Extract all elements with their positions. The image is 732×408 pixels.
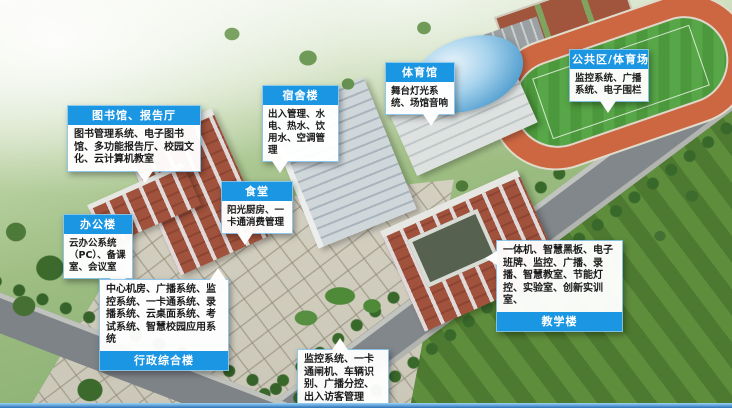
callout-gymnasium-title: 体育馆 xyxy=(386,63,454,82)
callout-public-area-title: 公共区/体育场 xyxy=(570,50,648,69)
callout-pointer xyxy=(423,114,439,126)
callout-gymnasium: 体育馆 舞台灯光系统、场馆音响 xyxy=(385,62,455,115)
callout-office-title: 办公楼 xyxy=(64,215,132,234)
callout-admin: 中心机房、广播系统、监控系统、一卡通系统、录播系统、云桌面系统、考试系统、智慧校… xyxy=(99,279,229,371)
smart-campus-diagram: 图书馆、报告厅 图书管理系统、电子图书馆、多功能报告厅、校园文化、云计算机教室 … xyxy=(0,0,732,408)
callout-canteen: 食堂 阳光厨房、一卡通消费管理 xyxy=(221,181,293,234)
callout-gate: 监控系统、一卡通闸机、车辆识别、广播分控、出入访客管理 校门口、门卫 xyxy=(297,349,389,408)
callout-dormitory-title: 宿舍楼 xyxy=(263,86,338,105)
callout-pointer xyxy=(210,268,226,280)
callout-pointer xyxy=(332,338,348,350)
callout-dormitory: 宿舍楼 出入管理、水电、热水、饮用水、空调管理 xyxy=(262,85,339,162)
callout-public-area: 公共区/体育场 监控系统、广播系统、电子围栏 xyxy=(569,49,649,102)
callout-teaching-body: 一体机、智慧黑板、电子班牌、监控、广播、录播、智慧教室、节能灯控、实验室、创新实… xyxy=(497,241,622,312)
callout-public-area-body: 监控系统、广播系统、电子围栏 xyxy=(570,69,648,101)
callout-pointer xyxy=(485,251,497,265)
callout-library-title: 图书馆、报告厅 xyxy=(68,106,200,125)
callout-pointer xyxy=(137,171,153,183)
slide-bottom-border xyxy=(0,403,732,408)
callout-teaching-title: 教学楼 xyxy=(497,312,622,331)
callout-gymnasium-body: 舞台灯光系统、场馆音响 xyxy=(386,82,454,114)
callout-gate-body: 监控系统、一卡通闸机、车辆识别、广播分控、出入访客管理 xyxy=(298,350,388,408)
callout-canteen-body: 阳光厨房、一卡通消费管理 xyxy=(222,201,292,233)
callout-teaching: 一体机、智慧黑板、电子班牌、监控、广播、录播、智慧教室、节能灯控、实验室、创新实… xyxy=(496,240,623,332)
callout-dormitory-body: 出入管理、水电、热水、饮用水、空调管理 xyxy=(263,105,338,161)
callout-pointer xyxy=(272,161,288,173)
callout-admin-title: 行政综合楼 xyxy=(100,351,228,370)
callout-pointer xyxy=(237,233,253,245)
callout-office: 办公楼 云办公系统（PC）、备课室、会议室 xyxy=(63,214,133,279)
callout-library-body: 图书管理系统、电子图书馆、多功能报告厅、校园文化、云计算机教室 xyxy=(68,125,200,171)
callout-library: 图书馆、报告厅 图书管理系统、电子图书馆、多功能报告厅、校园文化、云计算机教室 xyxy=(67,105,201,172)
callout-office-body: 云办公系统（PC）、备课室、会议室 xyxy=(64,234,132,278)
callout-canteen-title: 食堂 xyxy=(222,182,292,201)
callout-admin-body: 中心机房、广播系统、监控系统、一卡通系统、录播系统、云桌面系统、考试系统、智慧校… xyxy=(100,280,228,351)
callout-pointer xyxy=(600,101,616,113)
